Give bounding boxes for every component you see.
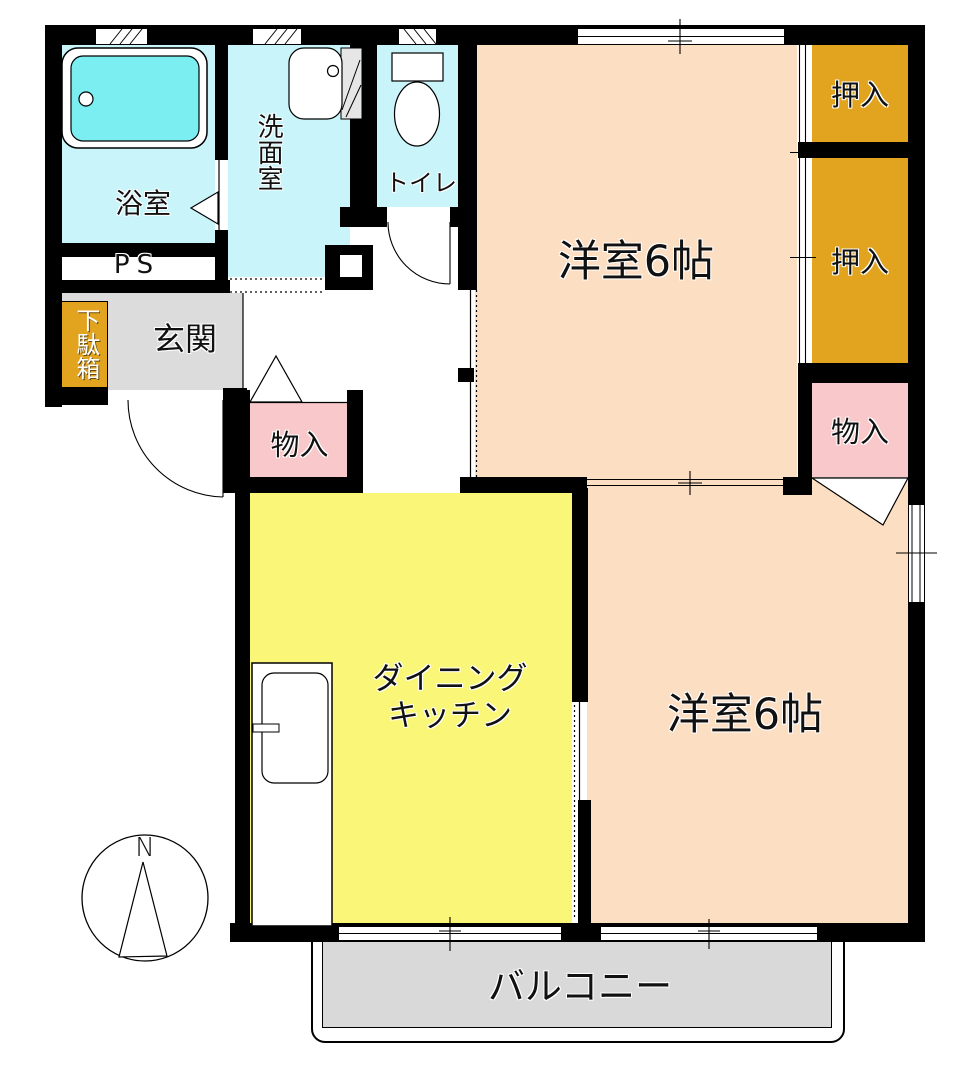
closet-top-label: 押入: [817, 79, 903, 111]
wall-room-top-door-stub: [458, 368, 474, 382]
entrance-door-arc: [128, 400, 223, 497]
washroom-label: 洗面室: [253, 113, 282, 191]
wall-closet-divider-1: [798, 142, 910, 158]
wall-bath-right-upper: [215, 45, 228, 160]
western-room-bottom-label: 洋室6帖: [625, 691, 865, 739]
wall-toilet-bottom-left: [340, 207, 387, 227]
dining-kitchen-label-line1: ダイニング: [350, 661, 550, 698]
wall-right-storage-left: [798, 383, 812, 477]
wall-exterior-bottom: [230, 923, 925, 942]
compass-north-label: N: [131, 834, 159, 863]
wall-dk-left: [235, 390, 250, 940]
wall-washroom-toilet: [350, 45, 377, 207]
closet-middle-label: 押入: [817, 246, 903, 278]
western-room-top-label: 洋室6帖: [516, 238, 756, 286]
bath-label: 浴室: [103, 188, 183, 219]
window-right-wall: [908, 505, 925, 602]
wall-closet-divider-2: [798, 363, 910, 383]
balcony-label: バルコニー: [460, 966, 700, 1007]
wall-dk-room-divider-lower: [578, 800, 591, 925]
wall-hall-storage-right: [347, 390, 363, 480]
hall-storage-label: 物入: [262, 429, 337, 461]
toilet-door-arc: [388, 222, 450, 284]
wall-toilet-room-divider: [458, 45, 477, 290]
hall-storage-door-triangle: [250, 356, 302, 402]
wall-pillar: [325, 245, 373, 290]
dining-kitchen-label: ダイニング キッチン: [350, 661, 550, 735]
wall-hall-dk-divider: [460, 477, 587, 493]
wall-dk-room-divider-upper: [572, 488, 588, 702]
louver-window-bath: [95, 28, 148, 45]
wall-exterior-top: [45, 25, 925, 45]
washroom-floor: [228, 45, 350, 277]
floor-plan: 浴室 洗面室 トイレ PS 下駄箱 玄関 物入 洋室6帖 押入 押入 物入 ダイ…: [0, 0, 961, 1087]
window-dk-balcony: [338, 926, 562, 941]
wall-ps-bottom: [45, 280, 230, 293]
pipe-space-label: PS: [107, 251, 167, 280]
louver-window-toilet: [398, 28, 437, 45]
wall-rooms-divider-stub: [783, 477, 812, 495]
louver-window-washroom: [252, 28, 302, 45]
window-room-top: [577, 28, 785, 45]
right-storage-label: 物入: [817, 416, 903, 448]
wall-entrance-bottom: [45, 388, 108, 405]
wall-exterior-right: [908, 25, 925, 942]
shoe-cabinet-label: 下駄箱: [72, 308, 99, 380]
window-room-balcony: [600, 926, 818, 941]
entrance-label: 玄関: [145, 322, 225, 358]
toilet-label: トイレ: [384, 170, 458, 197]
wall-exterior-left: [45, 25, 62, 407]
dining-kitchen-label-line2: キッチン: [350, 698, 550, 735]
wall-hall-storage-bottom: [240, 477, 363, 493]
